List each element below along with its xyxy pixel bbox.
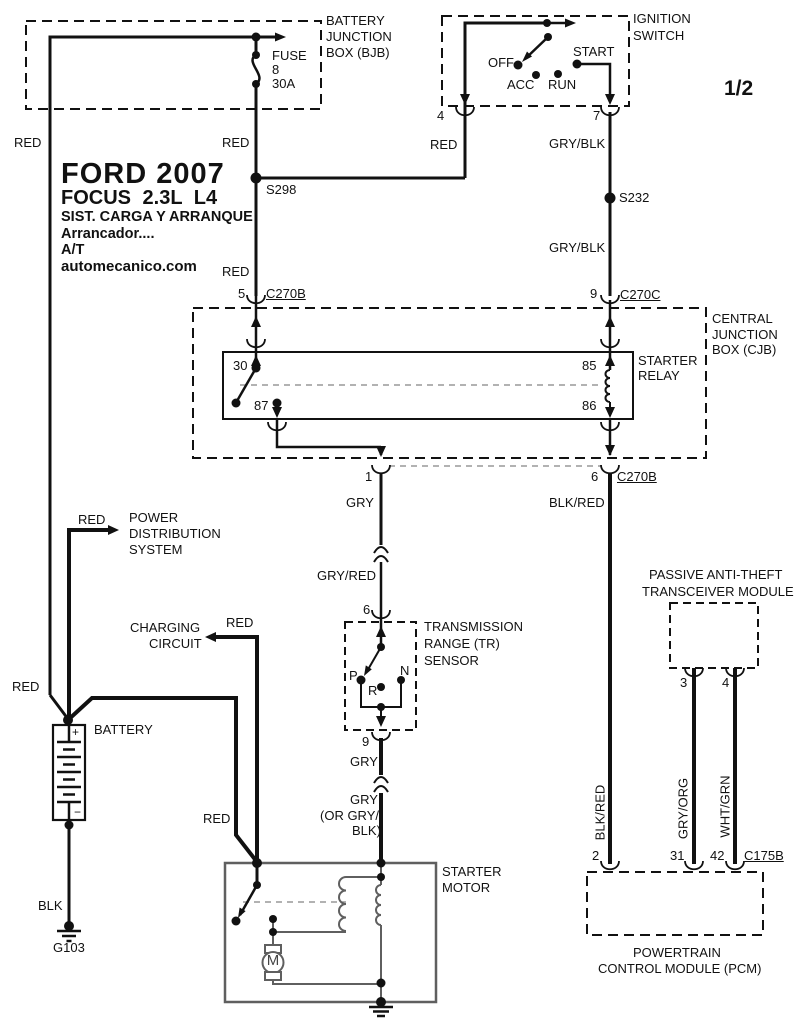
wire-label-gryblk-1: GRY/BLK: [549, 137, 605, 151]
title-subsystem: Arrancador....: [61, 226, 154, 242]
wire-label-gryred: GRY/RED: [317, 569, 376, 583]
connector-c270b-top: C270B: [266, 287, 306, 301]
cjb-pin-6: 6: [591, 470, 598, 484]
ignition-pos-start: START: [573, 45, 614, 59]
relay-divider-dashed: [240, 385, 602, 902]
fuse-8-symbol: [253, 55, 260, 84]
ignition-feed-wiring: [256, 23, 545, 178]
splice-2: [374, 777, 388, 792]
title-transmission: A/T: [61, 242, 84, 258]
starter-internal: [263, 863, 382, 1002]
cjb-outline: [193, 308, 706, 458]
tr-pos-n: N: [400, 664, 409, 678]
wire-label-gry-2: GRY: [350, 755, 378, 769]
battery-negative-sign: −: [74, 805, 81, 819]
pcm-label-line2: CONTROL MODULE (PCM): [598, 962, 761, 976]
pats-pin-4: 4: [722, 676, 729, 690]
tr-pos-r: R: [368, 684, 377, 698]
pcm-outline: [587, 872, 763, 935]
wire-label-red-starter: RED: [203, 812, 230, 826]
tr-sensor-label: TRANSMISSION RANGE (TR) SENSOR: [424, 618, 523, 669]
relay-pin-85: 85: [582, 359, 596, 373]
sheet-indicator: 1/2: [724, 77, 753, 101]
connector-c175b: C175B: [744, 849, 784, 863]
ground-g103-label: G103: [53, 941, 85, 955]
starter-relay-label: STARTER RELAY: [638, 353, 697, 383]
relay-pin-87: 87: [254, 399, 268, 413]
pats-label-line1: PASSIVE ANTI-THEFT: [649, 568, 782, 582]
title-model-engine: FOCUS 2.3L L4: [61, 187, 217, 210]
ignition-pos-off: OFF: [488, 56, 514, 70]
ignition-pin-7: 7: [593, 109, 600, 123]
fuse-label: FUSE 8 30A: [272, 49, 307, 91]
pats-module-outline: [670, 603, 758, 668]
motor-m-symbol: M: [266, 954, 280, 968]
wire-label-gryblk-2: GRY/BLK: [549, 241, 605, 255]
battery-positive-sign: +: [72, 725, 79, 739]
wire-label-red-fuse-out: RED: [222, 265, 249, 279]
wire-label-red-ign: RED: [430, 138, 457, 152]
pcm-label-line1: POWERTRAIN: [633, 946, 721, 960]
cjb-pin-1: 1: [365, 470, 372, 484]
cjb-pin-9: 9: [590, 287, 597, 301]
charging-circuit-label-line1: CHARGING: [130, 621, 200, 635]
wire-label-gry-3: GRY: [350, 793, 378, 807]
pats-pin-3: 3: [680, 676, 687, 690]
title-website: automecanico.com: [61, 258, 197, 275]
cjb-pin-5: 5: [238, 287, 245, 301]
cjb-label: CENTRAL JUNCTION BOX (CJB): [712, 311, 778, 358]
pcm-pin-31: 31: [670, 849, 684, 863]
wire-label-red-fuse-in: RED: [222, 136, 249, 150]
tr-pin-6: 6: [363, 603, 370, 617]
ignition-switch-outline: [442, 16, 629, 106]
charging-circuit-label-line2: CIRCUIT: [149, 637, 202, 651]
pcm-pin-42: 42: [710, 849, 724, 863]
wire-label-blkred-vert: BLK/RED: [593, 778, 608, 848]
connector-c270b-bottom: C270B: [617, 470, 657, 484]
ignition-pos-run: RUN: [548, 78, 576, 92]
splice-s232-label: S232: [619, 191, 649, 205]
relay-pin-86: 86: [582, 399, 596, 413]
wiring-svg: [0, 0, 800, 1021]
starter-ground-symbol: [369, 1007, 393, 1016]
connector-c270c: C270C: [620, 288, 660, 302]
wire-label-gryorg-vert: GRY/ORG: [676, 774, 691, 844]
wire-label-gry-1: GRY: [346, 496, 374, 510]
splice-1: [374, 547, 388, 562]
arrowheads: [108, 19, 615, 919]
wire-label-blk: BLK: [38, 899, 63, 913]
pats-label-line2: TRANSCEIVER MODULE: [642, 585, 794, 599]
wire-label-whtgrn-vert: WHT/GRN: [718, 772, 733, 842]
wire-label-or-gry: (OR GRY/: [320, 809, 379, 823]
wire-label-red-left-bottom: RED: [12, 680, 39, 694]
starter-motor-label: STARTER MOTOR: [442, 864, 501, 896]
wire-label-red-left: RED: [14, 136, 41, 150]
wire-label-red-charging: RED: [226, 616, 253, 630]
pcm-pin-2: 2: [592, 849, 599, 863]
bjb-label: BATTERY JUNCTION BOX (BJB): [326, 13, 392, 61]
power-distribution-label: POWER DISTRIBUTION SYSTEM: [129, 510, 221, 558]
wiring-diagram-page: BATTERY JUNCTION BOX (BJB) FUSE 8 30A IG…: [0, 0, 800, 1021]
splice-s298-label: S298: [266, 183, 296, 197]
ignition-pos-acc: ACC: [507, 78, 534, 92]
ignition-pin-4: 4: [437, 109, 444, 123]
wire-label-blk-paren: BLK): [352, 824, 381, 838]
battery-label: BATTERY: [94, 723, 153, 737]
ignition-switch-label: IGNITION SWITCH: [633, 10, 691, 44]
tr-pos-p: P: [349, 669, 358, 683]
connector-cups: [247, 107, 744, 869]
wire-label-red-powerdist: RED: [78, 513, 105, 527]
relay-coil: [606, 370, 611, 402]
wire-label-blkred: BLK/RED: [549, 496, 605, 510]
title-system: SIST. CARGA Y ARRANQUE: [61, 209, 253, 225]
tr-pin-9: 9: [362, 735, 369, 749]
relay-pin-30: 30: [233, 359, 247, 373]
